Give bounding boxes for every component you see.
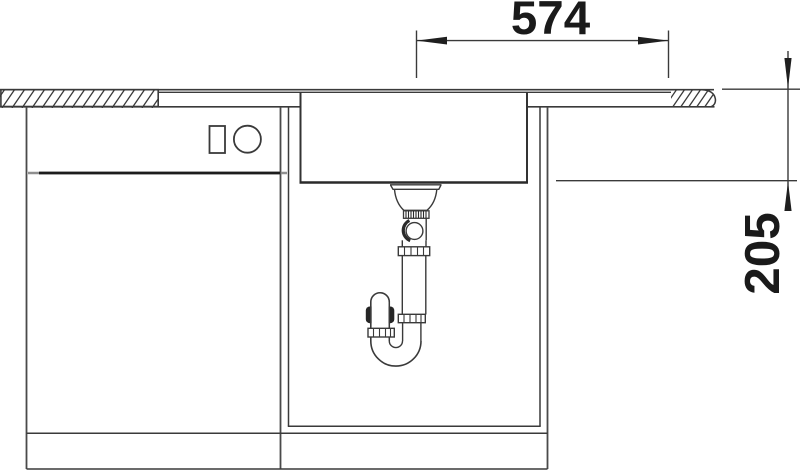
svg-text:574: 574 [511, 0, 591, 45]
svg-text:205: 205 [735, 212, 790, 295]
